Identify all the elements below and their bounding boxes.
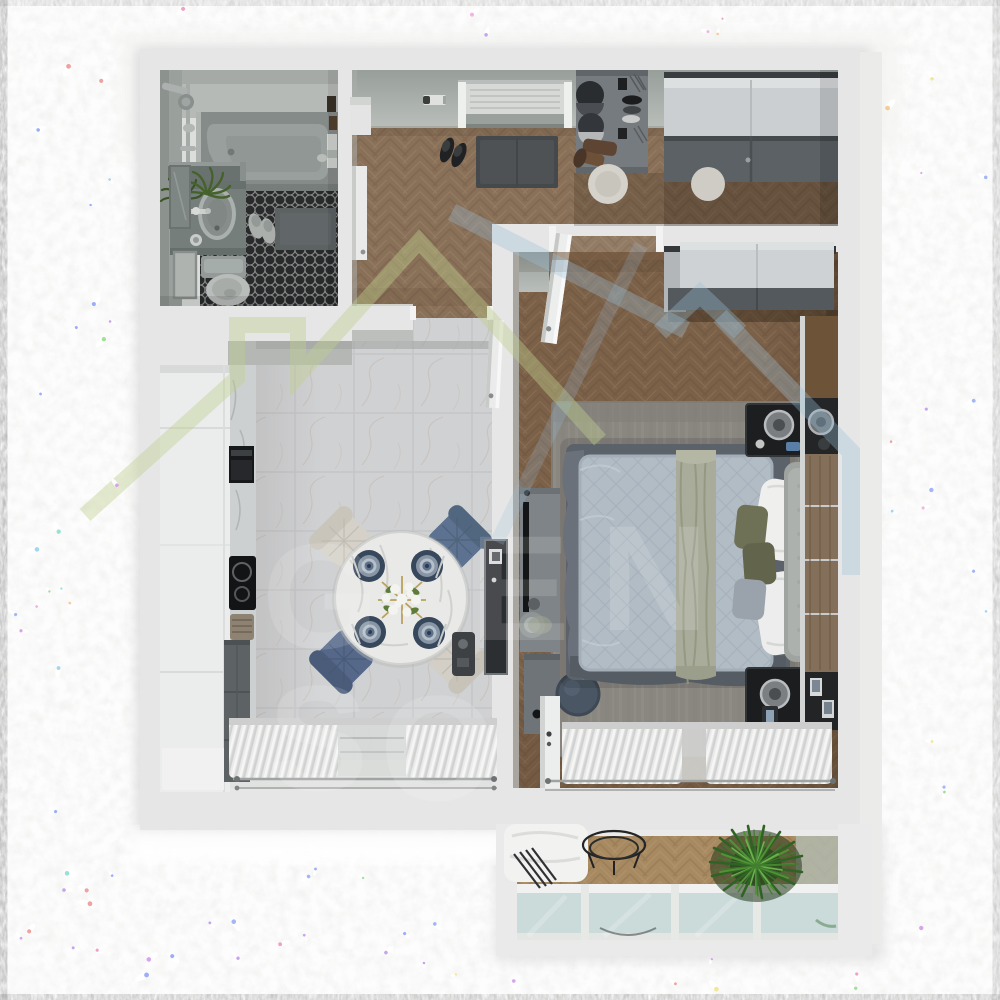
svg-text:S: S bbox=[268, 654, 368, 822]
svg-text:O: O bbox=[380, 664, 497, 832]
svg-text:E: E bbox=[470, 504, 570, 672]
svg-text:N: N bbox=[600, 494, 708, 662]
